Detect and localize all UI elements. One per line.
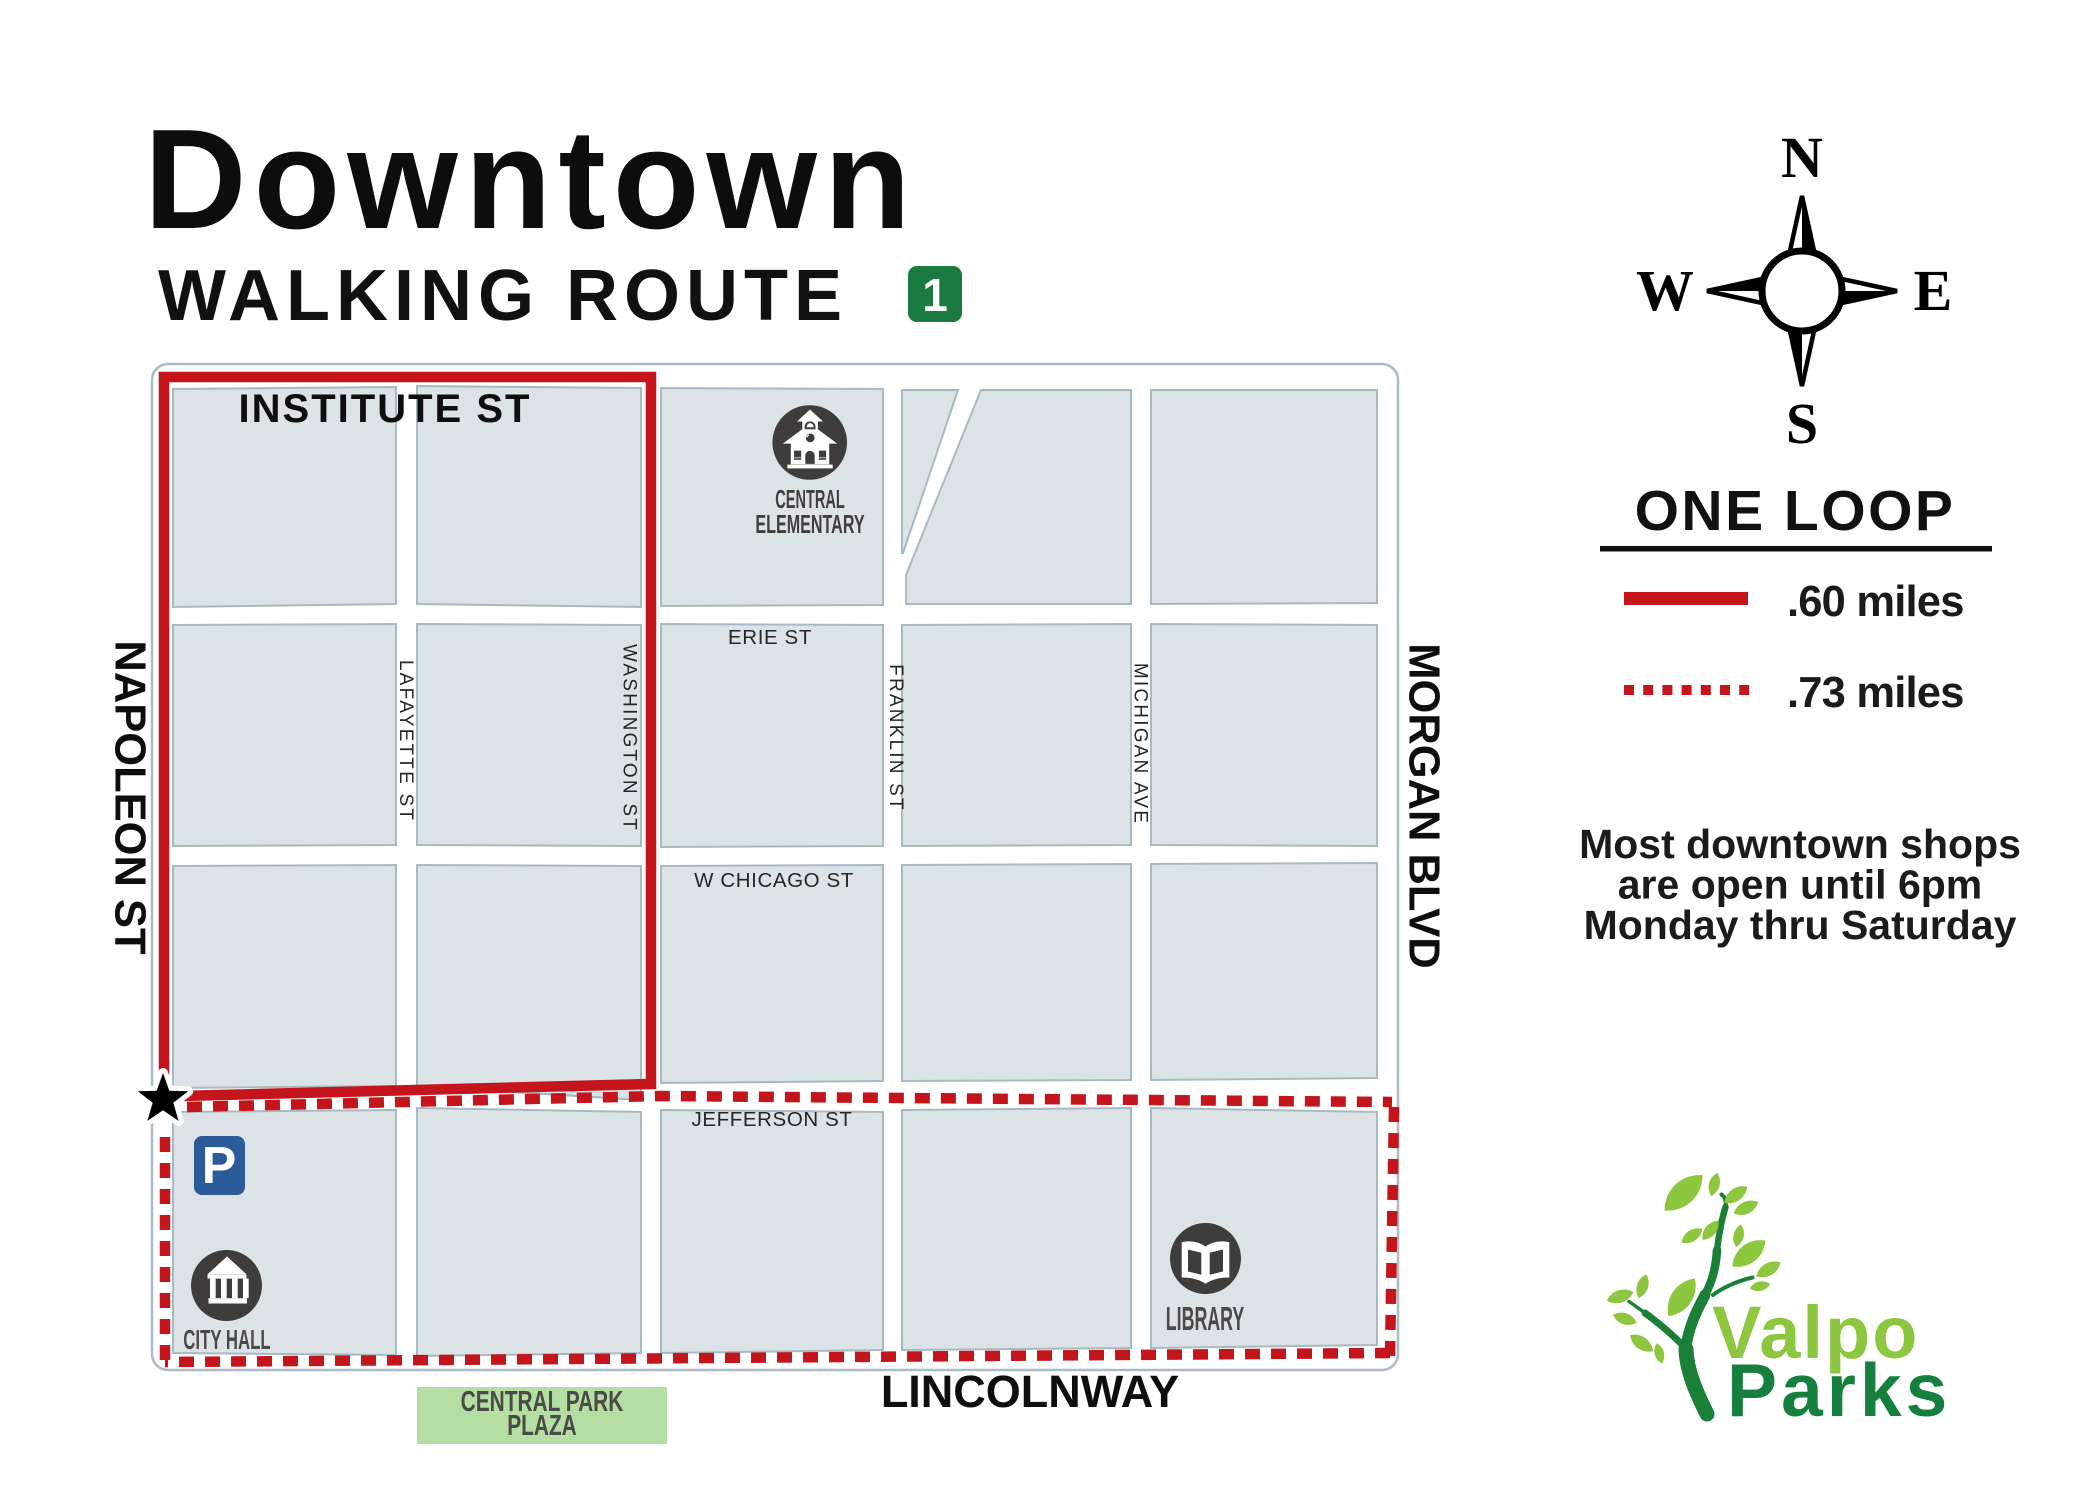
svg-text:LAFAYETTE ST: LAFAYETTE ST: [395, 660, 416, 822]
svg-text:PLAZA: PLAZA: [507, 1410, 577, 1442]
svg-text:INSTITUTE ST: INSTITUTE ST: [239, 387, 532, 431]
svg-text:LINCOLNWAY: LINCOLNWAY: [881, 1366, 1179, 1417]
svg-text:MORGAN BLVD: MORGAN BLVD: [1400, 643, 1448, 968]
svg-text:.73 miles: .73 miles: [1787, 669, 1964, 717]
svg-text:NAPOLEON ST: NAPOLEON ST: [106, 640, 154, 955]
svg-text:N: N: [1781, 125, 1823, 190]
svg-text:W CHICAGO ST: W CHICAGO ST: [694, 869, 854, 892]
svg-text:WALKING ROUTE: WALKING ROUTE: [158, 256, 848, 336]
svg-text:JEFFERSON ST: JEFFERSON ST: [692, 1108, 853, 1131]
svg-text:.60 miles: .60 miles: [1787, 578, 1964, 626]
svg-text:ERIE ST: ERIE ST: [728, 626, 812, 649]
svg-text:ELEMENTARY: ELEMENTARY: [755, 509, 865, 539]
svg-text:ONE LOOP: ONE LOOP: [1635, 479, 1956, 543]
svg-text:WASHINGTON ST: WASHINGTON ST: [619, 644, 640, 832]
svg-text:E: E: [1914, 258, 1953, 323]
svg-text:1: 1: [922, 269, 948, 321]
svg-text:LIBRARY: LIBRARY: [1166, 1300, 1245, 1337]
svg-text:CITY HALL: CITY HALL: [183, 1324, 270, 1356]
svg-text:MICHIGAN AVE: MICHIGAN AVE: [1130, 663, 1151, 825]
svg-text:Most downtown shops: Most downtown shops: [1579, 821, 2021, 867]
svg-text:W: W: [1636, 258, 1694, 323]
svg-text:Parks: Parks: [1727, 1348, 1951, 1432]
svg-text:S: S: [1786, 391, 1818, 456]
svg-text:Monday thru Saturday: Monday thru Saturday: [1584, 902, 2017, 948]
svg-text:Downtown: Downtown: [144, 100, 918, 259]
svg-text:are open until 6pm: are open until 6pm: [1618, 862, 1983, 908]
svg-text:FRANKLIN ST: FRANKLIN ST: [885, 664, 906, 812]
svg-text:P: P: [202, 1137, 237, 1195]
